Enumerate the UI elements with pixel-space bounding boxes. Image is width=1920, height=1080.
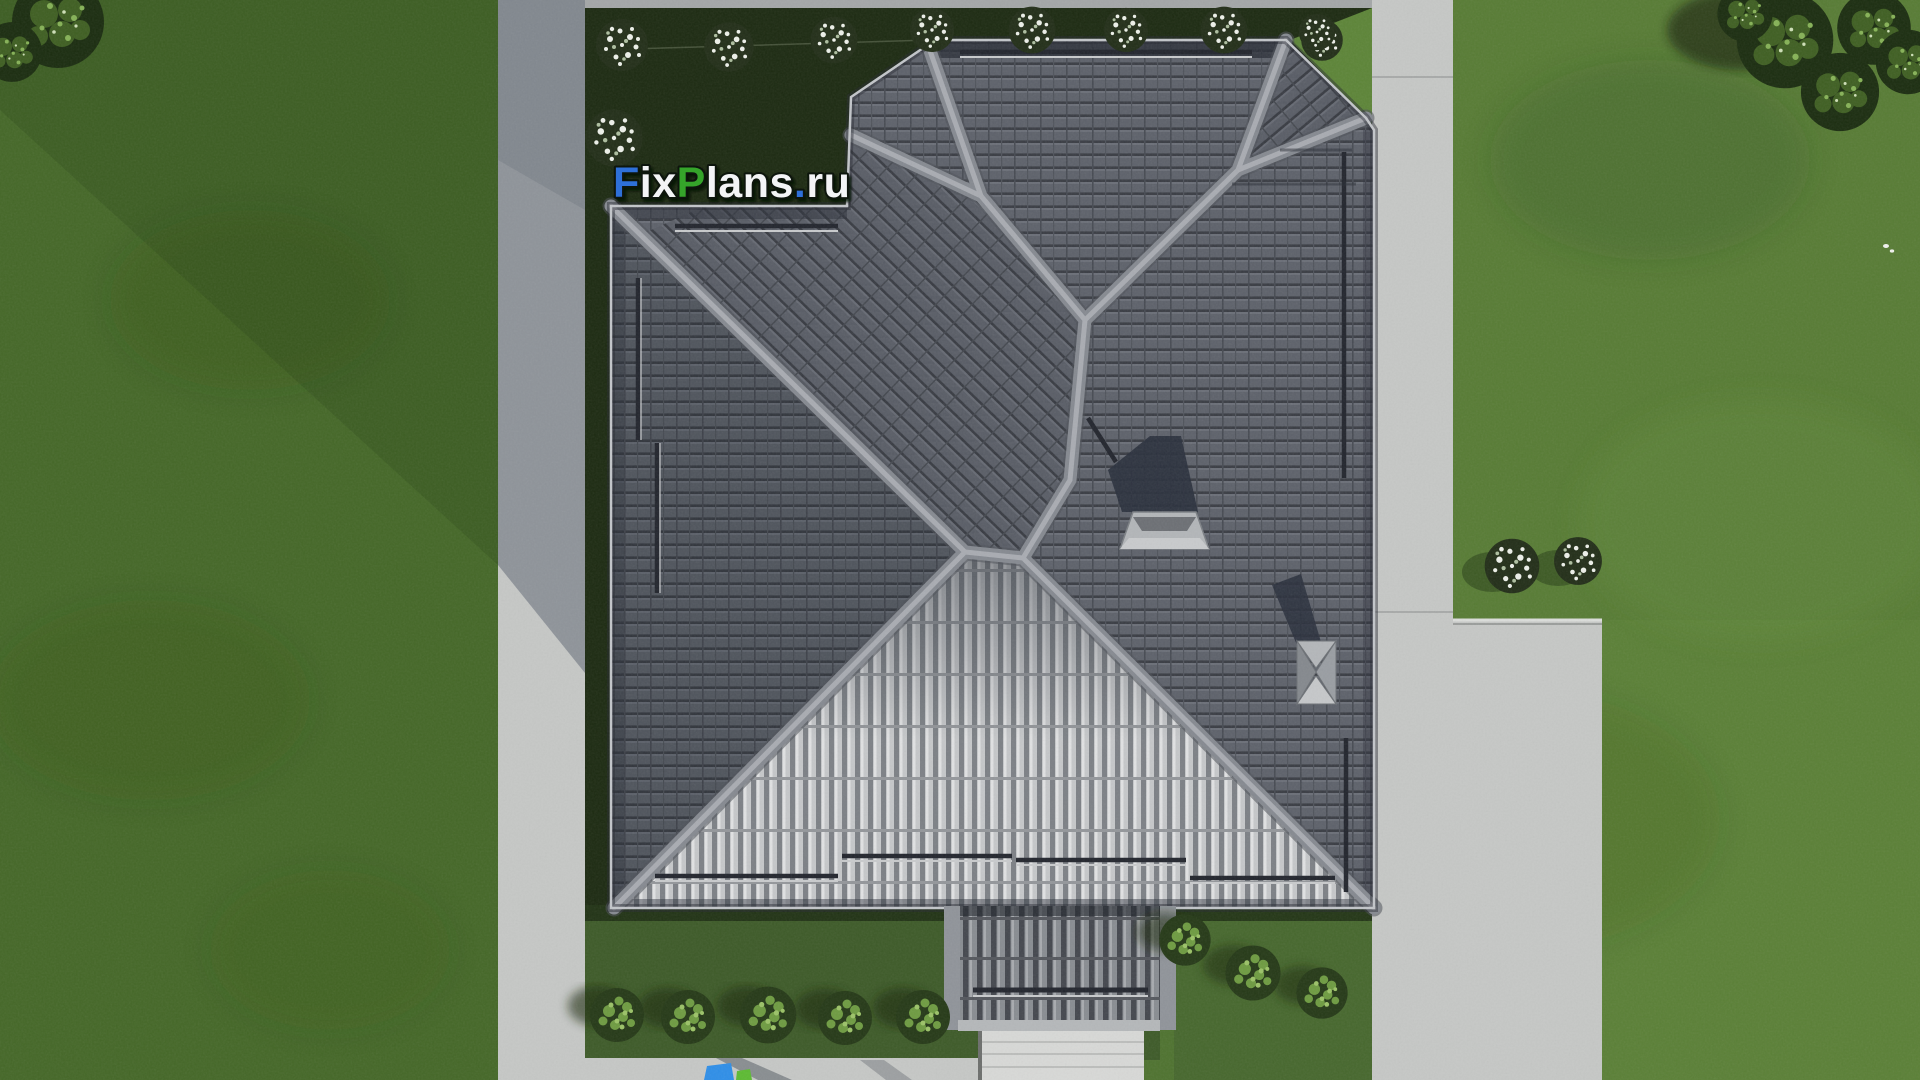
film-grain xyxy=(0,0,1920,1080)
scene-canvas: FixPlans.ru xyxy=(0,0,1920,1080)
watermark-text: FixPlans.ru xyxy=(613,159,850,207)
watermark-logo: FixPlans.ru xyxy=(613,159,850,207)
aerial-house-render: FixPlans.ru xyxy=(0,0,1920,1080)
